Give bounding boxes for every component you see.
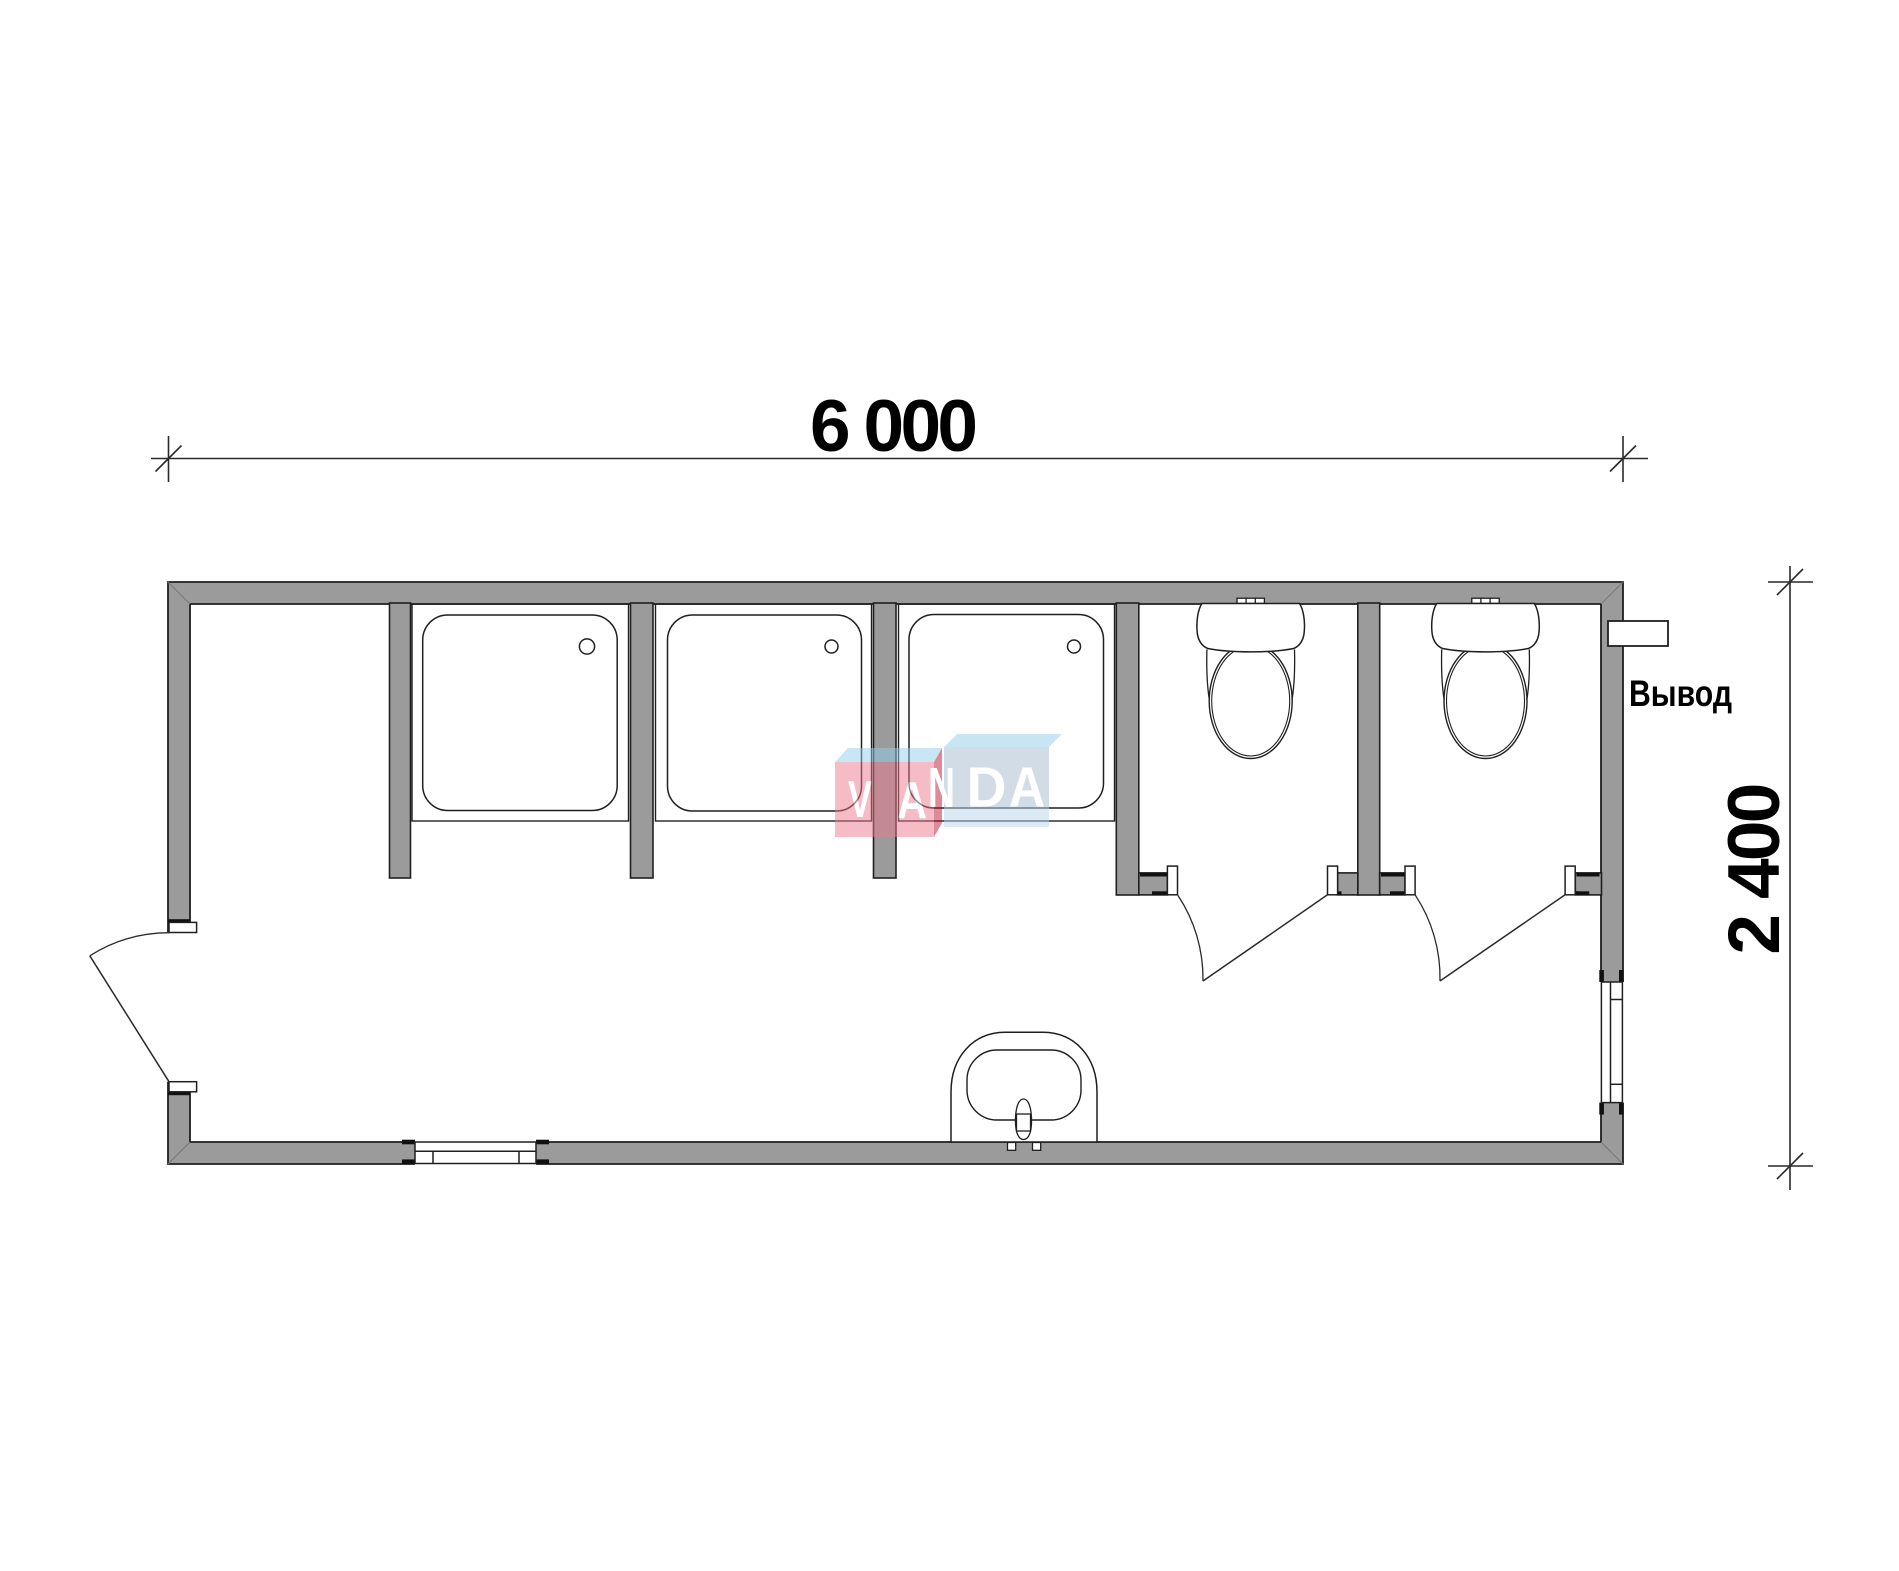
svg-text:A: A: [1009, 756, 1046, 820]
svg-text:D: D: [967, 756, 1007, 820]
svg-text:A: A: [897, 772, 927, 830]
svg-text:Вывод: Вывод: [1629, 673, 1732, 714]
svg-text:6 000: 6 000: [810, 386, 978, 467]
svg-text:N: N: [928, 756, 955, 820]
svg-text:2 400: 2 400: [1714, 783, 1795, 955]
svg-text:V: V: [848, 771, 872, 829]
